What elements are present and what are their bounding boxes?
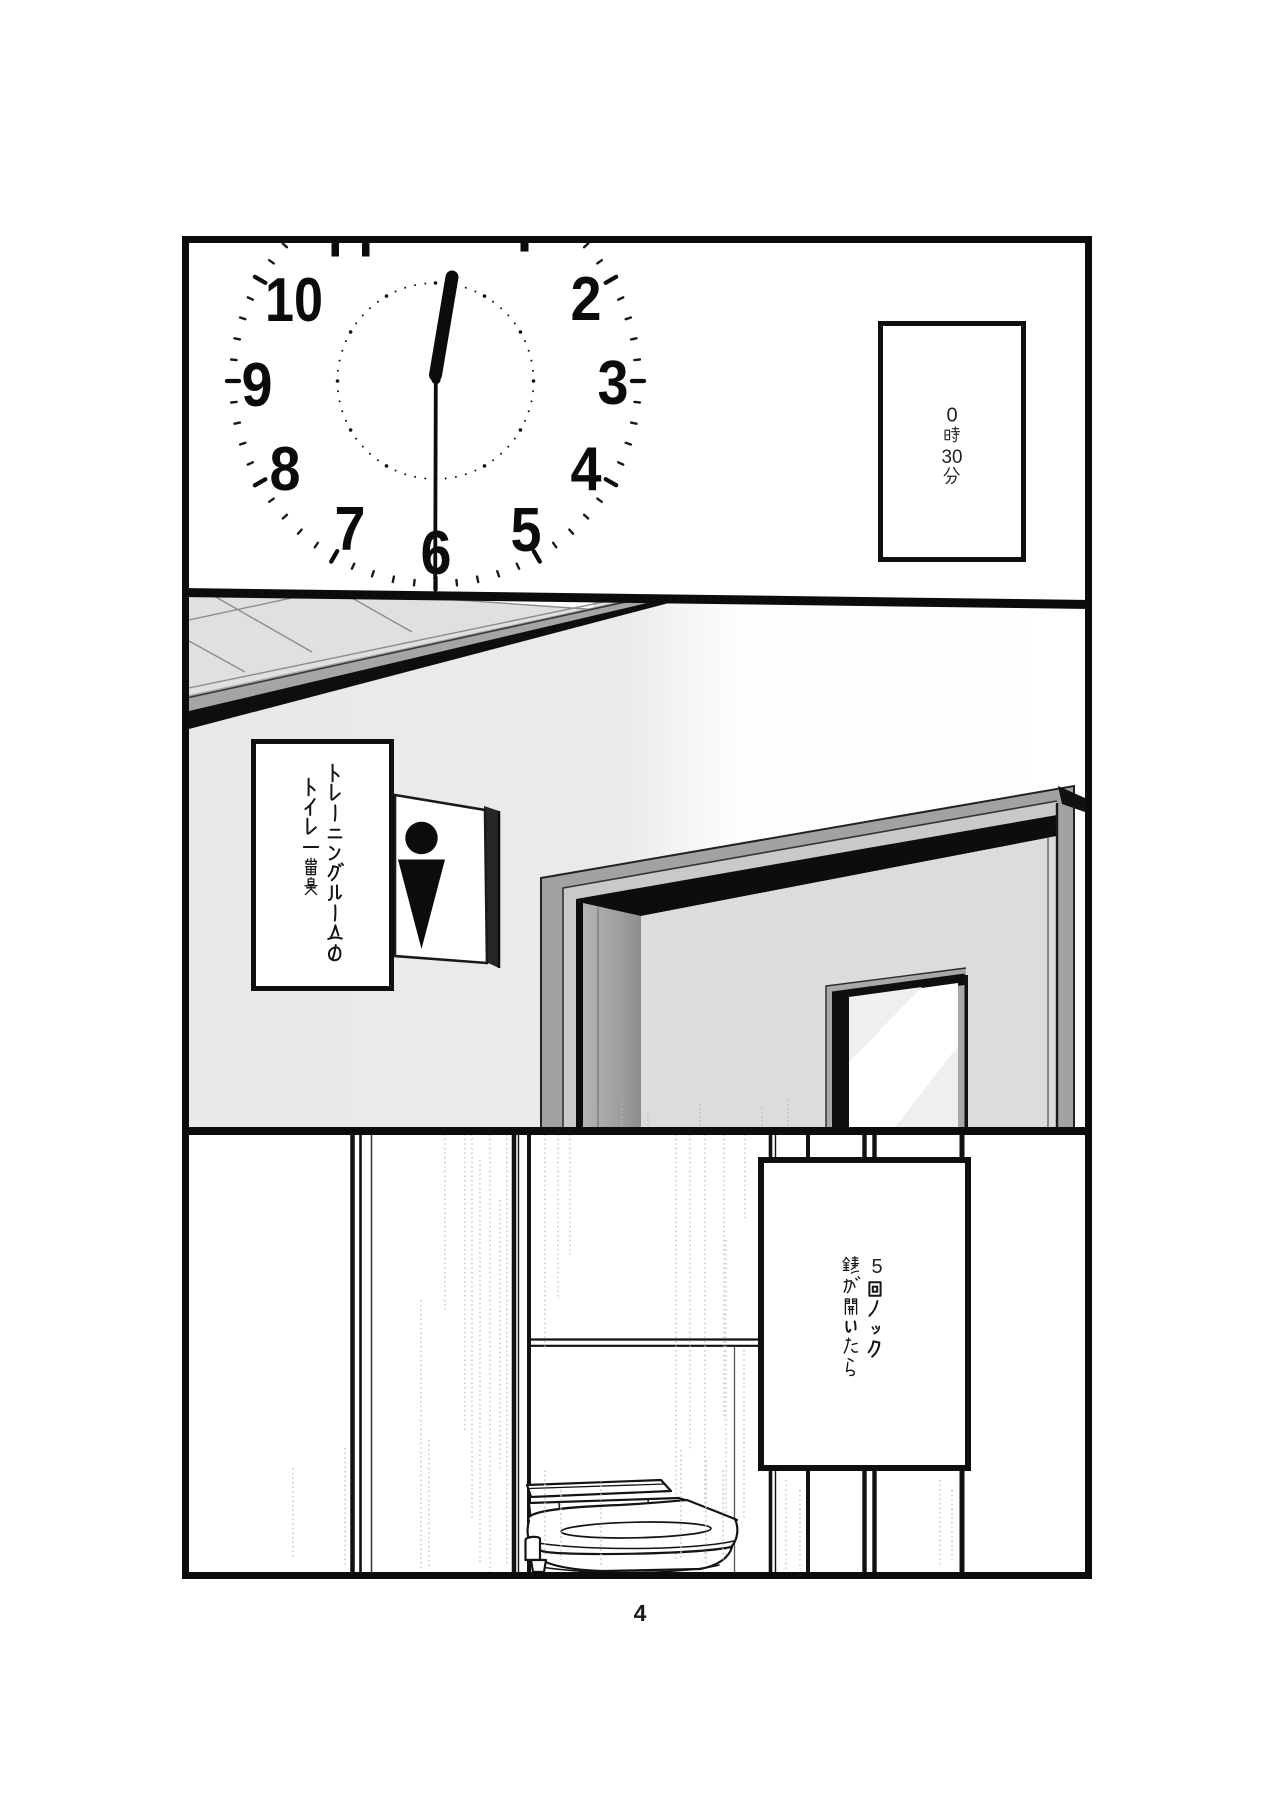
svg-text:7: 7 xyxy=(335,495,366,564)
svg-text:5: 5 xyxy=(871,1256,882,1278)
svg-text:9: 9 xyxy=(242,351,273,420)
svg-text:8: 8 xyxy=(270,435,301,504)
svg-text:0: 0 xyxy=(946,405,957,427)
svg-text:4: 4 xyxy=(634,1600,647,1626)
svg-text:3: 3 xyxy=(598,349,629,418)
svg-text:30: 30 xyxy=(942,447,963,468)
svg-text:2: 2 xyxy=(571,265,602,334)
svg-text:10: 10 xyxy=(265,266,323,335)
svg-text:5: 5 xyxy=(511,496,542,565)
svg-text:4: 4 xyxy=(571,435,602,504)
